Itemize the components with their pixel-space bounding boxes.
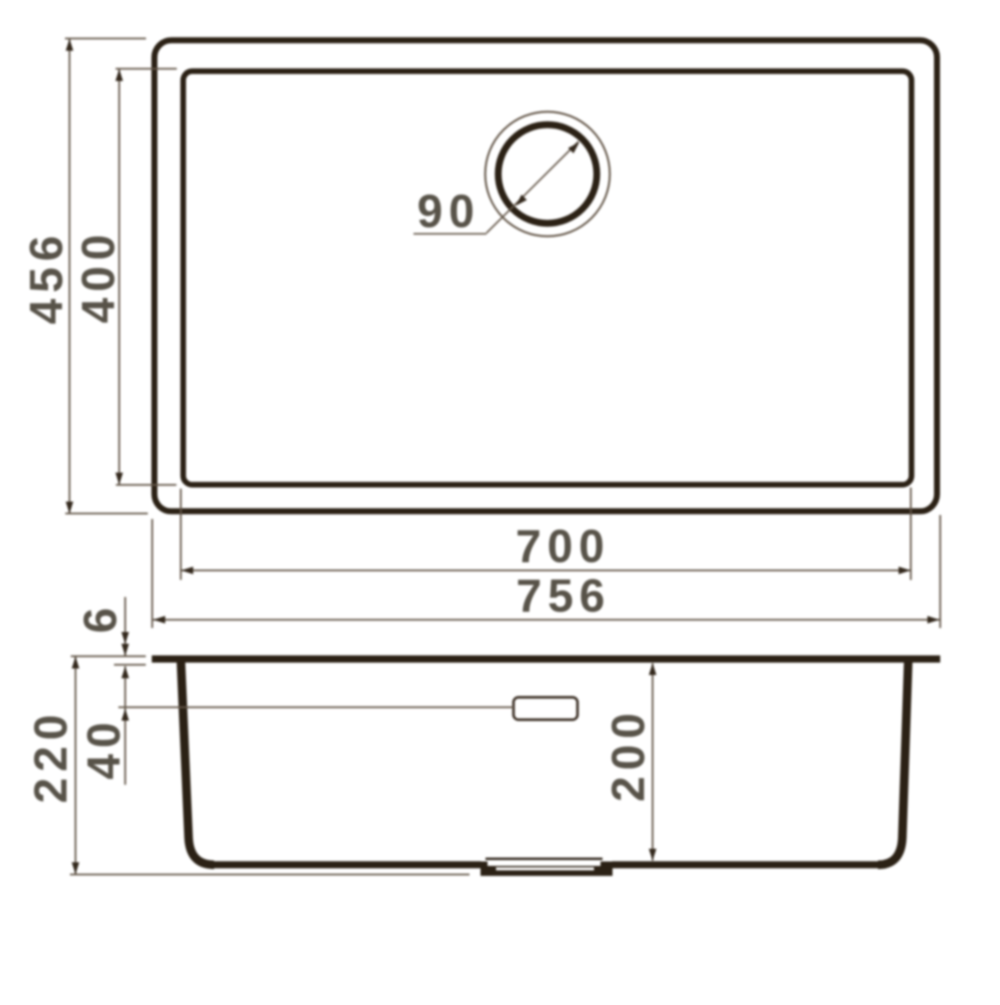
svg-text:6: 6 — [74, 602, 126, 634]
svg-text:90: 90 — [417, 185, 480, 237]
svg-text:700: 700 — [516, 520, 611, 572]
svg-text:40: 40 — [78, 716, 130, 779]
svg-text:456: 456 — [20, 230, 72, 325]
svg-text:220: 220 — [24, 709, 76, 804]
svg-text:400: 400 — [72, 229, 124, 324]
svg-text:200: 200 — [602, 707, 654, 802]
svg-text:756: 756 — [516, 570, 611, 622]
